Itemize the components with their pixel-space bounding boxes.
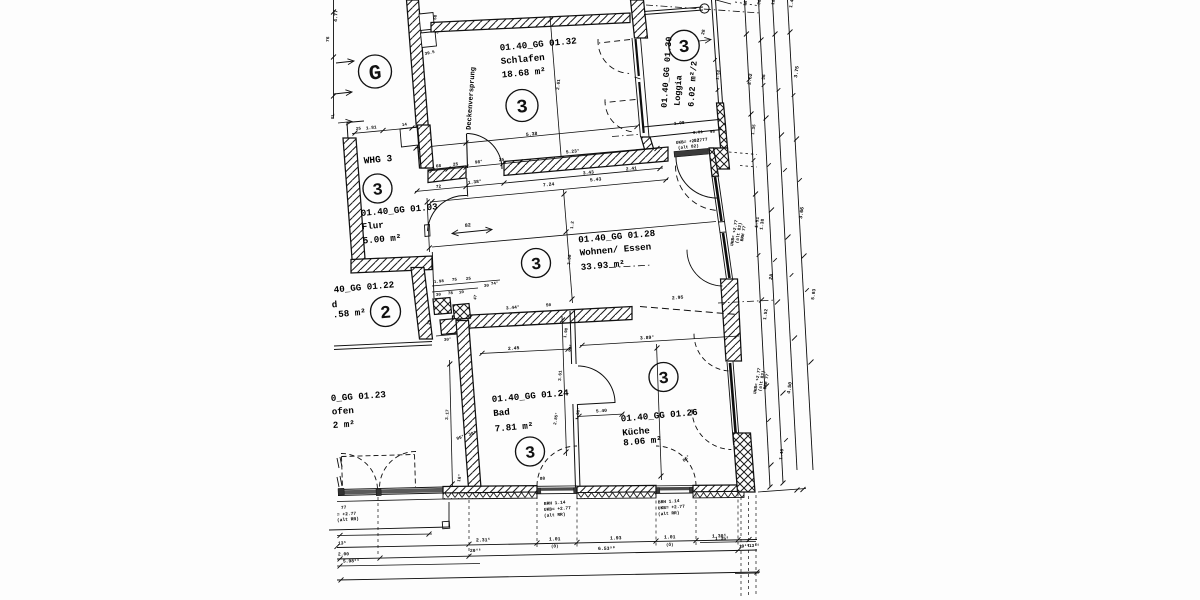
svg-text:2.41: 2.41 [626, 165, 638, 172]
svg-text:(Ö): (Ö) [666, 543, 674, 548]
svg-text:Flur: Flur [361, 220, 384, 233]
svg-text:74°: 74° [491, 281, 499, 287]
svg-text:1.2: 1.2 [570, 221, 576, 230]
svg-text:13⁵: 13⁵ [338, 540, 347, 546]
svg-text:1.98: 1.98 [674, 120, 686, 127]
svg-text:3.61: 3.61 [558, 370, 564, 381]
svg-text:50: 50 [546, 303, 552, 308]
svg-text:1.01: 1.01 [549, 536, 561, 542]
svg-text:80: 80 [540, 476, 546, 482]
svg-text:6.53⁹⁰: 6.53⁹⁰ [598, 546, 615, 552]
svg-text:98: 98 [710, 130, 716, 135]
svg-text:25: 25 [499, 158, 505, 164]
svg-text:2 m²: 2 m² [332, 418, 355, 431]
svg-text:2.00: 2.00 [338, 551, 349, 557]
svg-text:10: 10 [459, 291, 465, 296]
svg-text:5.43: 5.43 [590, 176, 602, 183]
svg-text:30°: 30° [444, 337, 452, 343]
svg-text:Bad: Bad [493, 407, 510, 419]
svg-text:25: 25 [466, 277, 472, 282]
svg-text:3: 3 [530, 256, 542, 276]
svg-text:4.77: 4.77 [333, 10, 339, 22]
svg-text:25: 25 [356, 127, 362, 132]
svg-text:72: 72 [436, 184, 442, 190]
svg-text:3: 3 [678, 38, 691, 59]
svg-text:77: 77 [341, 505, 347, 511]
svg-text:20⁴⁸: 20⁴⁸ [470, 548, 481, 554]
svg-text:2.31⁵: 2.31⁵ [476, 537, 491, 543]
svg-text:3: 3 [516, 96, 529, 119]
svg-text:25: 25 [453, 162, 459, 168]
svg-text:(Ö): (Ö) [551, 544, 559, 549]
svg-text:5.38: 5.38 [526, 131, 538, 138]
svg-text:2: 2 [379, 304, 392, 325]
svg-text:7.24: 7.24 [543, 181, 555, 188]
svg-text:2.95: 2.95 [672, 295, 684, 302]
svg-text:3.89°: 3.89° [640, 334, 655, 341]
svg-text:1.01: 1.01 [664, 534, 676, 540]
svg-text:ofen: ofen [331, 405, 354, 418]
svg-text:5.40: 5.40 [596, 408, 608, 415]
svg-text:3: 3 [658, 370, 670, 390]
svg-text:3.44°: 3.44° [506, 304, 520, 311]
svg-text:3: 3 [524, 444, 536, 464]
svg-text:1.35⁵: 1.35⁵ [715, 536, 729, 542]
svg-text:36: 36 [761, 74, 768, 81]
svg-text:G: G [368, 63, 383, 87]
svg-text:76: 76 [325, 36, 331, 42]
svg-text:68: 68 [436, 164, 442, 170]
svg-text:78: 78 [448, 292, 454, 297]
svg-text:14: 14 [402, 123, 408, 128]
svg-text:1.81: 1.81 [366, 124, 378, 131]
svg-text:30: 30 [484, 284, 490, 289]
svg-text:Loggia: Loggia [673, 75, 685, 106]
svg-text:3.43: 3.43 [583, 169, 595, 176]
svg-text:13⁵⁵: 13⁵⁵ [749, 544, 760, 549]
svg-text:3: 3 [372, 181, 384, 201]
svg-text:2.61: 2.61 [555, 79, 562, 91]
svg-text:10: 10 [771, 0, 777, 5]
svg-text:5.98⁶⁶: 5.98⁶⁶ [343, 558, 360, 564]
svg-text:3.17: 3.17 [445, 409, 451, 420]
svg-text:82: 82 [465, 222, 472, 229]
svg-text:75: 75 [452, 278, 458, 283]
svg-text:FL: FL [330, 113, 336, 119]
svg-text:36: 36 [757, 0, 763, 5]
svg-text:1.93: 1.93 [610, 535, 622, 541]
svg-text:2.45: 2.45 [508, 345, 520, 352]
svg-text:2A: 2A [768, 273, 775, 280]
svg-text:30: 30 [436, 293, 442, 298]
svg-text:98°: 98° [475, 160, 483, 166]
